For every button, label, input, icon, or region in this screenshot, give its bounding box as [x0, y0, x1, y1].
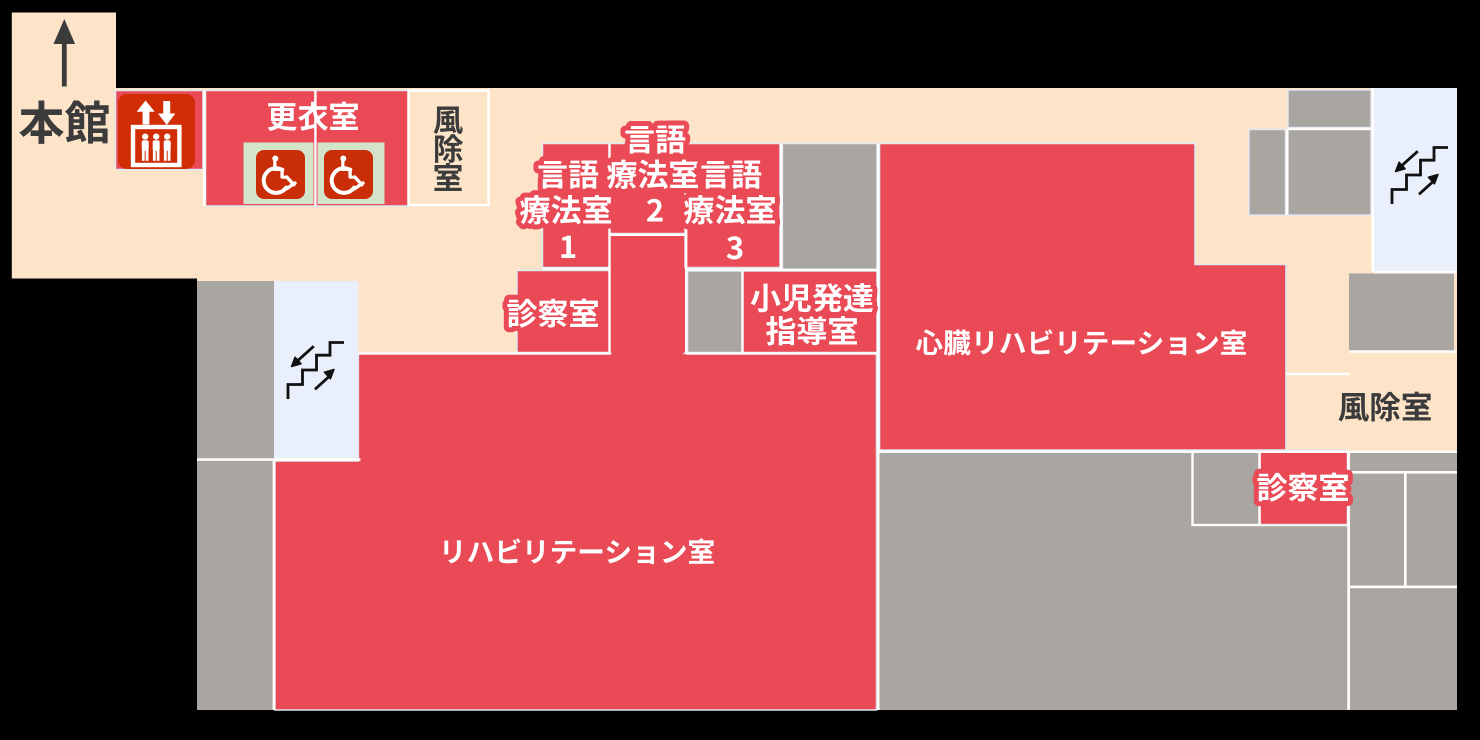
- svg-text:2: 2: [646, 186, 664, 231]
- svg-text:診察室: 診察室: [1257, 463, 1350, 508]
- svg-text:風除室: 風除室: [1338, 383, 1433, 429]
- svg-text:更衣室: 更衣室: [267, 92, 360, 137]
- svg-text:心臓リハビリテーション室: 心臓リハビリテーション室: [916, 321, 1248, 361]
- svg-text:1: 1: [559, 222, 577, 267]
- svg-text:診察室: 診察室: [507, 289, 600, 334]
- svg-text:室: 室: [433, 154, 464, 198]
- svg-text:指導室: 指導室: [766, 307, 859, 352]
- svg-text:リハビリテーション室: リハビリテーション室: [439, 530, 715, 570]
- svg-text:3: 3: [726, 223, 744, 268]
- svg-text:本館: 本館: [19, 88, 111, 154]
